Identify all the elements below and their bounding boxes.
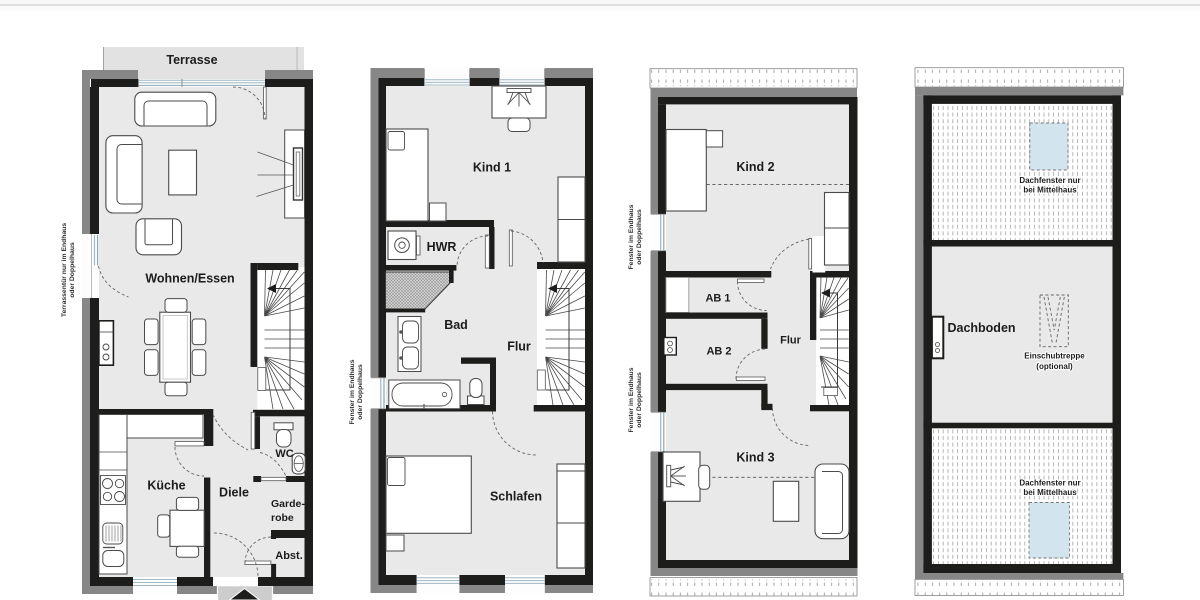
svg-text:Kind 3: Kind 3 — [736, 450, 774, 464]
svg-text:Terrassentür nur im Endhaus: Terrassentür nur im Endhaus — [61, 223, 68, 318]
svg-text:Terrasse: Terrasse — [166, 53, 217, 67]
svg-text:Dachboden: Dachboden — [947, 321, 1015, 335]
svg-text:Flur: Flur — [780, 335, 801, 347]
svg-text:WC: WC — [275, 448, 293, 460]
svg-text:Fenster im Endhaus: Fenster im Endhaus — [628, 204, 635, 269]
svg-text:Bad: Bad — [444, 318, 468, 332]
svg-text:oder Doppelhaus: oder Doppelhaus — [69, 242, 76, 298]
svg-text:Flur: Flur — [507, 340, 531, 354]
svg-text:(optional): (optional) — [1036, 362, 1073, 371]
svg-text:oder Doppelhaus: oder Doppelhaus — [636, 372, 643, 428]
svg-text:Diele: Diele — [219, 486, 249, 500]
svg-text:robe: robe — [271, 512, 294, 524]
svg-text:Fenster im Endhaus: Fenster im Endhaus — [628, 367, 635, 432]
svg-text:AB 1: AB 1 — [705, 293, 730, 305]
svg-text:Dachfenster nur: Dachfenster nur — [1019, 176, 1080, 185]
svg-text:bei Mittelhaus: bei Mittelhaus — [1023, 186, 1077, 195]
svg-text:Kind 1: Kind 1 — [473, 161, 511, 175]
svg-text:Küche: Küche — [147, 479, 185, 493]
svg-text:oder Doppelhaus: oder Doppelhaus — [636, 209, 643, 265]
svg-text:AB 2: AB 2 — [706, 346, 731, 358]
svg-text:Wohnen/Essen: Wohnen/Essen — [145, 272, 234, 286]
svg-text:HWR: HWR — [427, 240, 457, 254]
svg-text:bei Mittelhaus: bei Mittelhaus — [1023, 488, 1077, 497]
svg-text:Garde-: Garde- — [271, 498, 305, 510]
svg-text:oder Doppelhaus: oder Doppelhaus — [357, 364, 364, 420]
svg-text:Kind 2: Kind 2 — [736, 160, 774, 174]
svg-text:Abst.: Abst. — [275, 550, 303, 562]
svg-text:Schlafen: Schlafen — [490, 490, 542, 504]
svg-text:Einschubtreppe: Einschubtreppe — [1024, 352, 1085, 361]
svg-text:Fenster im Endhaus: Fenster im Endhaus — [349, 359, 356, 424]
svg-text:Dachfenster nur: Dachfenster nur — [1019, 479, 1080, 488]
